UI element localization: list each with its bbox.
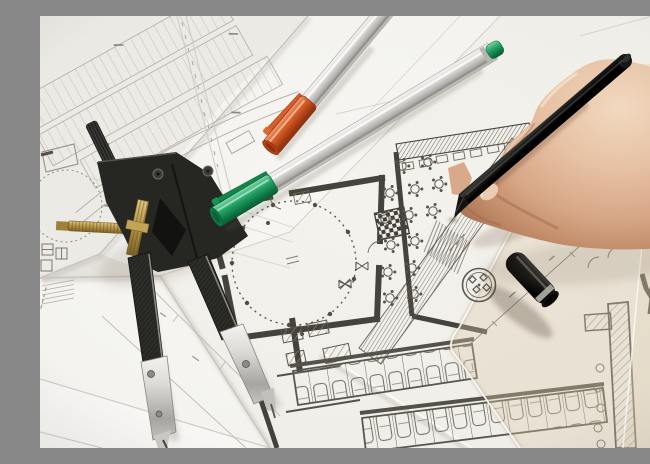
workspace-photo xyxy=(40,16,650,448)
photo-canvas xyxy=(40,16,650,448)
vignette-overlay xyxy=(40,16,650,448)
